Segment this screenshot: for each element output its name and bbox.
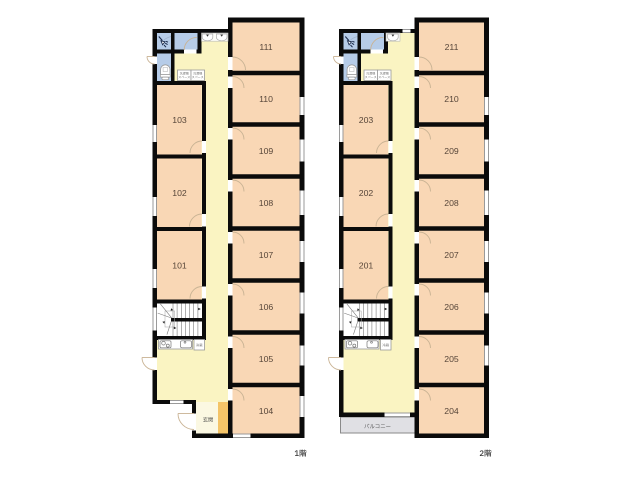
svg-text:111: 111 [259,42,272,52]
svg-text:207: 207 [444,250,459,260]
svg-text:105: 105 [259,354,274,364]
svg-text:101: 101 [172,261,187,271]
svg-text:109: 109 [259,146,274,156]
svg-text:107: 107 [259,250,274,260]
svg-text:208: 208 [444,198,459,208]
svg-text:110: 110 [259,94,273,104]
svg-text:205: 205 [444,354,459,364]
svg-text:211: 211 [445,42,459,52]
svg-text:203: 203 [359,115,374,125]
svg-text:102: 102 [172,188,187,198]
svg-text:204: 204 [444,406,459,416]
svg-text:206: 206 [444,302,459,312]
svg-text:103: 103 [172,115,187,125]
svg-text:201: 201 [359,261,374,271]
svg-text:106: 106 [259,302,274,312]
svg-text:209: 209 [444,146,459,156]
svg-text:108: 108 [259,198,274,208]
svg-text:202: 202 [359,188,374,198]
svg-text:210: 210 [444,94,459,104]
svg-text:104: 104 [259,406,274,416]
